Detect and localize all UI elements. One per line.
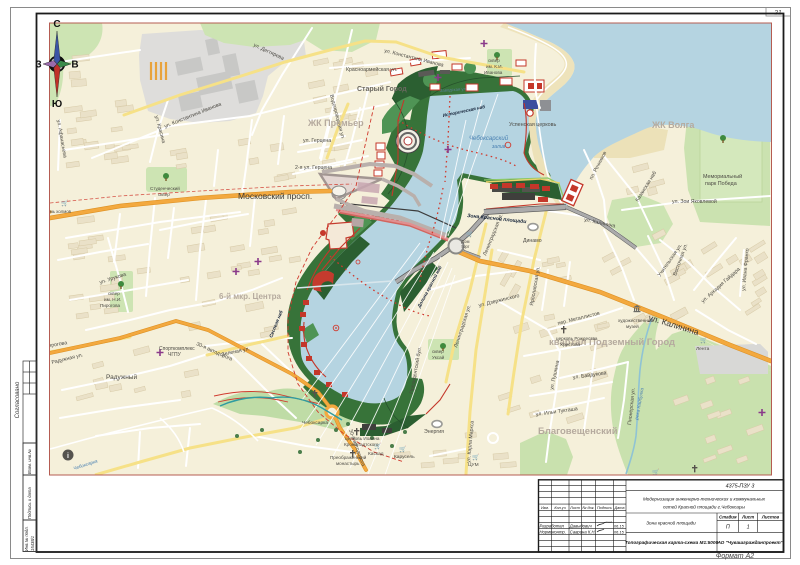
svg-text:Топографическая карта-схема М1: Топографическая карта-схема М1:5000 [625, 539, 719, 545]
svg-text:Зона красной площади: Зона красной площади [646, 520, 696, 526]
svg-text:З: З [35, 60, 41, 71]
svg-text:Радужный: Радужный [106, 373, 137, 381]
svg-text:Лист: Лист [569, 506, 580, 510]
svg-text:художественный: художественный [618, 317, 654, 323]
svg-text:Подпись и дата: Подпись и дата [27, 487, 32, 519]
svg-text:Давыдович: Давыдович [569, 523, 593, 528]
svg-text:сквер: сквер [158, 192, 170, 197]
svg-text:🛒: 🛒 [700, 336, 708, 344]
svg-text:Согласовано: Согласовано [15, 381, 21, 418]
svg-text:АО "Чувашгражданпроект": АО "Чувашгражданпроект" [716, 540, 783, 545]
svg-text:№ док.: № док. [582, 506, 594, 510]
svg-text:1: 1 [747, 525, 750, 531]
svg-text:монастырь: монастырь [336, 461, 360, 466]
svg-text:им. К.И.: им. К.И. [486, 64, 503, 69]
svg-text:🛒: 🛒 [472, 453, 480, 461]
svg-text:Карусель: Карусель [394, 454, 415, 460]
svg-text:музей: музей [626, 323, 639, 329]
svg-text:Христова: Христова [560, 342, 580, 347]
svg-text:ЦУМ: ЦУМ [468, 462, 479, 468]
svg-text:06.15: 06.15 [614, 529, 625, 534]
svg-text:Лист: Лист [741, 514, 754, 519]
svg-text:Саврина К.Н.: Саврина К.Н. [570, 529, 596, 534]
svg-text:сквер: сквер [108, 291, 120, 296]
svg-text:Лента: Лента [696, 346, 710, 352]
svg-text:Ю: Ю [52, 99, 62, 110]
svg-text:🛒: 🛒 [466, 230, 474, 238]
svg-text:торг: торг [461, 244, 470, 249]
svg-text:Благовещенский: Благовещенский [538, 426, 618, 437]
svg-text:сквер: сквер [488, 58, 500, 63]
svg-text:Листов: Листов [761, 514, 780, 519]
svg-text:В: В [71, 60, 78, 71]
svg-text:Красноармейская ул.: Красноармейская ул. [346, 66, 397, 73]
svg-text:Пирогова: Пирогова [100, 303, 120, 308]
svg-text:Чебоксарка: Чебоксарка [302, 420, 328, 426]
svg-text:4375-ПЗУ 3: 4375-ПЗУ 3 [726, 484, 755, 490]
svg-text:Иванова: Иванова [484, 70, 503, 75]
svg-text:церковь Иоанна: церковь Иоанна [345, 436, 380, 441]
svg-text:Нормоконтр.: Нормоконтр. [540, 529, 566, 534]
svg-text:Дата: Дата [613, 506, 624, 510]
svg-text:ул. Зои Яковлевой: ул. Зои Яковлевой [672, 198, 717, 205]
svg-text:i: i [67, 453, 69, 460]
svg-text:Формат А2: Формат А2 [716, 553, 754, 560]
svg-text:Модернизация инженерно-техниче: Модернизация инженерно-технических и ком… [643, 496, 766, 501]
svg-text:Уксай: Уксай [432, 354, 445, 360]
svg-text:сквер: сквер [432, 349, 444, 354]
svg-text:Стадия: Стадия [719, 514, 737, 519]
svg-text:Разработал: Разработал [540, 523, 565, 528]
svg-text:Изм.: Изм. [541, 506, 549, 510]
svg-text:15438/1: 15438/1 [30, 536, 35, 551]
svg-text:Кронштадтского: Кронштадтского [344, 442, 379, 447]
svg-text:Чебоксарский: Чебоксарский [469, 135, 509, 142]
svg-text:2-я ул. Герцена: 2-я ул. Герцена [295, 165, 332, 171]
svg-text:сетей Красной площади г.Чебокс: сетей Красной площади г.Чебоксары [663, 503, 745, 509]
svg-text:ул. Герцена: ул. Герцена [303, 138, 331, 144]
svg-text:Старый Город: Старый Город [357, 85, 407, 93]
svg-text:церковь Рождества: церковь Рождества [556, 336, 598, 341]
svg-text:Энергия: Энергия [424, 429, 444, 435]
svg-text:ЧГПУ: ЧГПУ [168, 352, 182, 358]
svg-text:Преображенский: Преображенский [330, 454, 367, 460]
svg-text:парк Победа: парк Победа [705, 181, 737, 187]
svg-text:Каскад: Каскад [368, 451, 384, 457]
svg-text:🛒: 🛒 [61, 199, 69, 207]
svg-text:П: П [726, 525, 730, 531]
svg-text:06.15: 06.15 [614, 523, 625, 528]
svg-text:🛒: 🛒 [399, 445, 407, 453]
svg-text:Взам. инв.№: Взам. инв.№ [27, 449, 32, 474]
svg-text:6-й мкр. Центра: 6-й мкр. Центра [219, 292, 282, 301]
svg-text:С: С [53, 19, 60, 30]
svg-text:Семь холмов: Семь холмов [44, 209, 72, 214]
svg-text:ЖК Премьер: ЖК Премьер [307, 118, 364, 128]
svg-text:Динамо: Динамо [523, 238, 542, 244]
svg-text:Московский просп.: Московский просп. [238, 191, 312, 201]
svg-text:Студенческий: Студенческий [150, 185, 180, 191]
svg-text:Инв.№ подл.: Инв.№ подл. [24, 526, 29, 551]
svg-text:им. Н.И.: им. Н.И. [104, 297, 121, 302]
svg-text:ЖК Волга: ЖК Волга [651, 120, 695, 130]
svg-text:Успенская церковь: Успенская церковь [509, 122, 557, 128]
svg-text:залив: залив [491, 144, 506, 150]
svg-text:Подпись: Подпись [597, 506, 612, 510]
svg-text:Кол.уч: Кол.уч [554, 506, 565, 510]
svg-text:Мемориальный: Мемориальный [703, 173, 742, 180]
